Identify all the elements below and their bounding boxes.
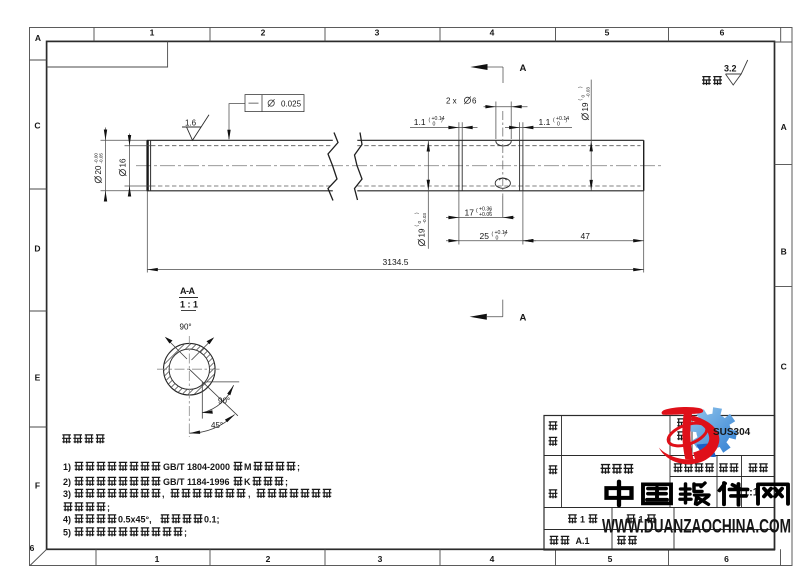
svg-text:3: 3 — [378, 554, 383, 564]
svg-text:;: ; — [297, 462, 300, 472]
svg-text:SUS304: SUS304 — [713, 427, 751, 438]
svg-text:2 x: 2 x — [446, 97, 457, 106]
svg-text:0: 0 — [557, 122, 560, 128]
svg-text:6: 6 — [724, 554, 729, 564]
svg-text:20: 20 — [94, 165, 103, 174]
svg-text:(: ( — [429, 118, 431, 124]
svg-text:0: 0 — [433, 122, 436, 128]
svg-text:F: F — [35, 481, 40, 491]
svg-text:): ) — [504, 232, 506, 238]
svg-text:0.1;: 0.1; — [204, 515, 220, 525]
svg-text:(: ( — [476, 208, 478, 214]
svg-text:2: 2 — [261, 28, 266, 38]
svg-text:25: 25 — [480, 231, 490, 241]
svg-text:,: , — [162, 489, 165, 499]
svg-text:A: A — [520, 312, 527, 323]
svg-text:(: ( — [578, 99, 583, 101]
svg-text:GB/T 1804-2000: GB/T 1804-2000 — [163, 462, 230, 472]
svg-text:1: 1 — [155, 554, 160, 564]
svg-text:1: 1 — [580, 515, 585, 525]
svg-text:A: A — [781, 122, 787, 132]
svg-text:;: ; — [285, 477, 288, 487]
svg-text:1): 1) — [63, 462, 71, 472]
svg-text:1.6: 1.6 — [185, 119, 197, 128]
svg-text:GB/T 1184-1996: GB/T 1184-1996 — [163, 477, 230, 487]
svg-text:1: 1 — [150, 28, 155, 38]
svg-text:B: B — [781, 247, 787, 257]
svg-text:3134.5: 3134.5 — [383, 257, 409, 267]
svg-text:0: 0 — [496, 236, 499, 242]
svg-text:): ) — [441, 118, 443, 124]
svg-text:D: D — [34, 244, 40, 254]
svg-text:1.1: 1.1 — [414, 117, 426, 127]
svg-text:3: 3 — [375, 28, 380, 38]
svg-text:19: 19 — [418, 228, 427, 237]
svg-text:3): 3) — [63, 489, 71, 499]
svg-text:47: 47 — [581, 231, 591, 241]
svg-text:A: A — [520, 63, 527, 74]
svg-text:1 : 1: 1 : 1 — [180, 300, 198, 310]
svg-text:4: 4 — [490, 554, 495, 564]
svg-text:C: C — [781, 362, 787, 372]
svg-text:6: 6 — [30, 543, 35, 553]
svg-text:(: ( — [414, 225, 419, 227]
svg-text:16: 16 — [119, 158, 128, 167]
svg-text:WWW.DUANZAOCHINA.COM: WWW.DUANZAOCHINA.COM — [602, 517, 791, 538]
svg-text:0.5x45°,: 0.5x45°, — [118, 515, 152, 525]
svg-text:A: A — [35, 33, 41, 43]
svg-text:(: ( — [553, 118, 555, 124]
svg-text:E: E — [35, 373, 41, 383]
svg-text:K: K — [244, 477, 251, 487]
svg-text:4): 4) — [63, 515, 71, 525]
svg-text:,: , — [248, 489, 251, 499]
svg-text:-0.03: -0.03 — [586, 87, 591, 98]
svg-text:5: 5 — [608, 554, 613, 564]
svg-text:3.2: 3.2 — [724, 64, 737, 74]
svg-text:(: ( — [492, 232, 494, 238]
svg-text:90°: 90° — [180, 323, 192, 332]
svg-text:): ) — [566, 118, 568, 124]
svg-text:4: 4 — [490, 28, 495, 38]
svg-text:6: 6 — [720, 28, 725, 38]
svg-text:2): 2) — [63, 477, 71, 487]
svg-text:1.1: 1.1 — [539, 117, 551, 127]
svg-text:M: M — [244, 462, 252, 472]
svg-text:0.025: 0.025 — [281, 99, 302, 108]
svg-text:17: 17 — [465, 208, 475, 218]
svg-text:;: ; — [184, 528, 187, 538]
svg-text:): ) — [489, 208, 491, 214]
svg-text:C: C — [34, 121, 40, 131]
svg-text:90°: 90° — [218, 397, 230, 406]
svg-text:A-A: A-A — [180, 286, 195, 296]
svg-text:19: 19 — [581, 102, 590, 111]
svg-text:45°: 45° — [211, 421, 223, 430]
svg-text:5: 5 — [605, 28, 610, 38]
svg-text:2: 2 — [266, 554, 271, 564]
svg-text:): ) — [414, 212, 419, 214]
svg-text:;: ; — [107, 503, 110, 513]
svg-text:A.1: A.1 — [576, 536, 590, 546]
svg-text:6: 6 — [472, 97, 477, 106]
svg-text:-0.03: -0.03 — [422, 213, 427, 224]
svg-text:5): 5) — [63, 528, 71, 538]
svg-text:-0.05: -0.05 — [99, 153, 104, 164]
svg-text:): ) — [578, 86, 583, 88]
